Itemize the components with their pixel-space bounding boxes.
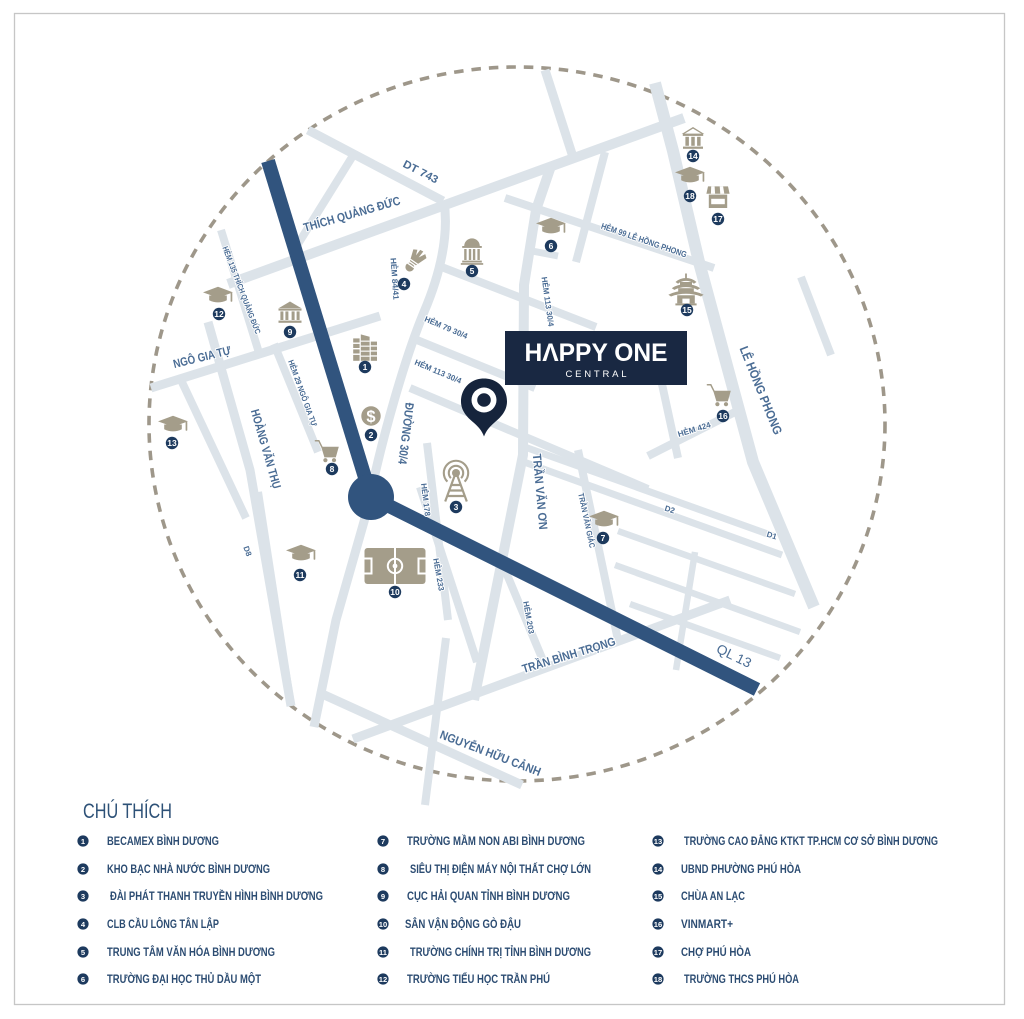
svg-text:TRƯỜNG CHÍNH TRỊ TỈNH BÌNH DƯƠ: TRƯỜNG CHÍNH TRỊ TỈNH BÌNH DƯƠNG [410, 944, 591, 959]
svg-text:8: 8 [381, 865, 385, 874]
svg-text:SIÊU THỊ ĐIỆN MÁY NỘI THẤT CHỢ: SIÊU THỊ ĐIỆN MÁY NỘI THẤT CHỢ LỚN [410, 861, 591, 876]
svg-text:7: 7 [601, 533, 606, 543]
svg-text:2: 2 [81, 865, 85, 874]
svg-text:UBND PHƯỜNG PHÚ HÒA: UBND PHƯỜNG PHÚ HÒA [681, 861, 801, 876]
svg-text:BECAMEX BÌNH DƯƠNG: BECAMEX BÌNH DƯƠNG [107, 833, 219, 848]
svg-text:13: 13 [654, 837, 662, 846]
svg-text:TRƯỜNG ĐẠI HỌC THỦ DẦU MỘT: TRƯỜNG ĐẠI HỌC THỦ DẦU MỘT [107, 971, 262, 986]
svg-text:KHO BẠC NHÀ NƯỚC BÌNH DƯƠNG: KHO BẠC NHÀ NƯỚC BÌNH DƯƠNG [107, 861, 270, 876]
svg-text:4: 4 [402, 279, 407, 289]
svg-text:TRUNG TÂM VĂN HÓA BÌNH DƯƠNG: TRUNG TÂM VĂN HÓA BÌNH DƯƠNG [107, 944, 275, 959]
svg-text:CLB CẦU LÔNG TÂN LẬP: CLB CẦU LÔNG TÂN LẬP [107, 916, 219, 931]
svg-text:12: 12 [214, 309, 224, 319]
svg-text:TRƯỜNG CAO ĐẲNG KTKT TP.HCM CƠ: TRƯỜNG CAO ĐẲNG KTKT TP.HCM CƠ SỞ BÌNH D… [684, 833, 938, 848]
svg-text:CỤC HẢI QUAN TỈNH BÌNH DƯƠNG: CỤC HẢI QUAN TỈNH BÌNH DƯƠNG [407, 888, 570, 903]
svg-text:11: 11 [296, 570, 305, 580]
svg-text:10: 10 [379, 920, 387, 929]
svg-text:CENTRAL: CENTRAL [566, 369, 627, 380]
svg-text:TRƯỜNG THCS PHÚ HÒA: TRƯỜNG THCS PHÚ HÒA [684, 971, 799, 986]
svg-text:6: 6 [81, 975, 85, 984]
svg-text:HΛPPY ONE: HΛPPY ONE [525, 339, 668, 367]
svg-text:6: 6 [549, 241, 554, 251]
svg-text:9: 9 [288, 327, 293, 337]
svg-text:3: 3 [81, 892, 85, 901]
svg-text:18: 18 [685, 191, 695, 201]
svg-text:ĐÀI PHÁT THANH TRUYỀN HÌNH BÌN: ĐÀI PHÁT THANH TRUYỀN HÌNH BÌNH DƯƠNG [110, 888, 323, 903]
svg-text:18: 18 [654, 975, 662, 984]
svg-text:15: 15 [682, 305, 692, 315]
svg-text:5: 5 [470, 266, 475, 276]
svg-text:17: 17 [654, 948, 662, 957]
svg-text:3: 3 [454, 502, 459, 512]
svg-text:CHÚ THÍCH: CHÚ THÍCH [83, 800, 172, 823]
svg-text:13: 13 [167, 438, 177, 448]
svg-text:10: 10 [390, 587, 400, 597]
svg-text:SÂN VẬN ĐỘNG GÒ ĐẬU: SÂN VẬN ĐỘNG GÒ ĐẬU [405, 916, 521, 931]
svg-text:14: 14 [688, 151, 698, 161]
svg-text:CHÙA AN LẠC: CHÙA AN LẠC [681, 888, 745, 903]
svg-text:1: 1 [363, 362, 368, 372]
svg-text:15: 15 [654, 892, 663, 901]
svg-text:14: 14 [654, 865, 663, 874]
svg-text:7: 7 [381, 837, 385, 846]
svg-text:CHỢ PHÚ HÒA: CHỢ PHÚ HÒA [681, 944, 751, 959]
svg-text:VINMART+: VINMART+ [681, 917, 733, 931]
svg-text:TRƯỜNG MẦM NON ABI BÌNH DƯƠNG: TRƯỜNG MẦM NON ABI BÌNH DƯƠNG [407, 833, 585, 848]
svg-text:9: 9 [381, 892, 385, 901]
svg-text:16: 16 [654, 920, 662, 929]
svg-text:8: 8 [330, 464, 335, 474]
svg-text:12: 12 [379, 975, 387, 984]
svg-text:11: 11 [379, 948, 388, 957]
svg-text:TRƯỜNG TIỂU HỌC TRẦN PHÚ: TRƯỜNG TIỂU HỌC TRẦN PHÚ [407, 971, 550, 986]
svg-text:17: 17 [713, 214, 723, 224]
svg-text:16: 16 [718, 411, 728, 421]
svg-text:2: 2 [369, 430, 374, 440]
